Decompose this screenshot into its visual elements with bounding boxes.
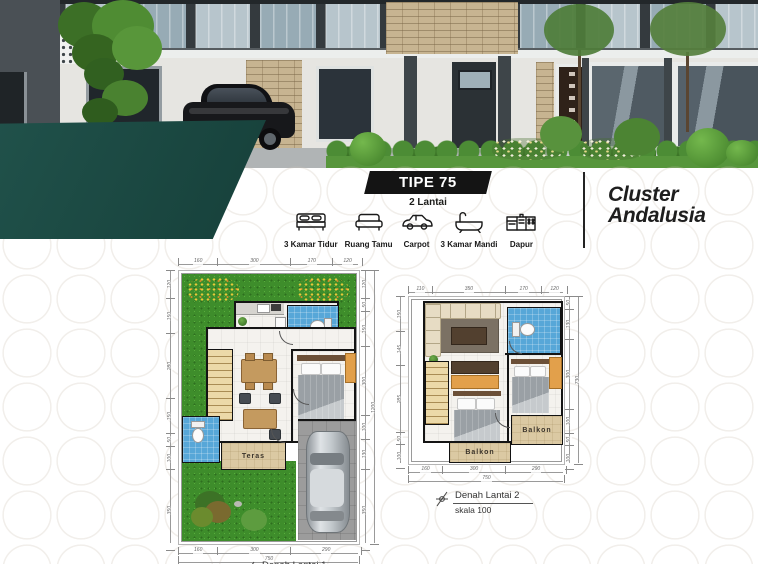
dim-label: 1200: [370, 270, 379, 545]
car-wheel-rim: [264, 133, 276, 145]
dim-label: 100: [361, 415, 370, 439]
console-cabinet: [451, 361, 499, 374]
tree-canopy: [82, 98, 118, 126]
dimension-col-left: 120 150 280 150 50 100 350: [166, 270, 175, 543]
feature-bathrooms: 3 Kamar Mandi: [441, 211, 498, 249]
carport: [298, 419, 356, 540]
car-icon: [400, 211, 434, 238]
coffee-table: [243, 409, 277, 429]
garden-plant: [191, 507, 213, 527]
dim-label: 170: [505, 286, 541, 294]
kitchen-sink: [257, 304, 270, 313]
dim-label: 350: [361, 469, 370, 551]
nightstand: [345, 353, 356, 383]
dim-label: 130: [361, 439, 370, 469]
bed-blanket: [454, 410, 500, 441]
bed-headboard: [453, 391, 501, 396]
dimension-col-right: 50 130 300 100 50 100: [565, 296, 574, 463]
terrace-label: Teras: [242, 453, 265, 460]
dim-label: 120: [166, 270, 175, 298]
feature-label: Carpot: [404, 240, 430, 249]
dimension-row-bottom: 160 300 290: [178, 547, 358, 555]
shrub: [614, 118, 660, 156]
tv-cabinet: [451, 327, 487, 345]
stove: [271, 304, 281, 311]
stone-cladding: [386, 2, 518, 54]
toilet-tank: [512, 322, 520, 337]
teal-ribbon: [0, 120, 266, 239]
caption-title: Denah Lantai 1: [260, 560, 340, 564]
feature-label: Ruang Tamu: [345, 240, 393, 249]
dim-label: 290: [505, 466, 567, 474]
caption-scale: skala 100: [453, 504, 533, 515]
balcony-label: Balkon: [465, 449, 494, 456]
dimension-col-left: 150 145 285 50 100: [396, 296, 405, 463]
tree-canopy: [544, 4, 614, 56]
floorplan-2-caption: Denah Lantai 2 skala 100: [435, 490, 533, 515]
dim-label: 50: [396, 432, 405, 445]
dim-label: 145: [396, 331, 405, 365]
garden-bush: [241, 509, 267, 531]
toilet-tank: [191, 421, 205, 428]
dim-label: 300: [217, 547, 290, 555]
floorplan-2-sheet: Balkon Balkon: [408, 296, 565, 465]
floorplan-1: 160 300 170 120 120 150 280 150 50 100 3…: [163, 256, 378, 564]
toilet-bowl: [192, 428, 204, 443]
balcony-label: Balkon: [522, 427, 551, 434]
interior-wall: [505, 353, 561, 355]
small-window: [458, 70, 492, 90]
dim-label: 130: [565, 309, 574, 340]
dim-label: 150: [166, 298, 175, 333]
floorplan-1-sheet: Teras: [178, 270, 360, 545]
car-rear-window: [310, 511, 344, 521]
dim-label: 290: [290, 547, 362, 555]
feature-bedrooms: 3 Kamar Tidur: [284, 211, 338, 249]
bed-pillow: [530, 366, 546, 377]
kitchen-icon: [504, 211, 538, 238]
dim-label: 50: [565, 296, 574, 309]
dim-label: 170: [290, 258, 332, 266]
dim-label: 100: [166, 446, 175, 470]
window: [316, 66, 374, 142]
dim-label: 100: [565, 409, 574, 433]
cluster-line2: Andalusia: [608, 205, 706, 226]
bed-pillow: [476, 398, 495, 410]
toilet-bowl: [520, 323, 535, 336]
brochure-page: TIPE 75 2 Lantai 3 Kamar Tidur: [0, 0, 758, 564]
dim-label: 300: [442, 466, 505, 474]
dim-label: 150: [361, 311, 370, 346]
dim-label: 160: [408, 466, 442, 474]
feature-label: 3 Kamar Tidur: [284, 240, 338, 249]
armchair: [269, 393, 281, 404]
dim-label: 120: [361, 270, 370, 298]
dim-label: 50: [565, 433, 574, 446]
balcony-right: Balkon: [511, 415, 563, 445]
bed-blanket: [512, 377, 549, 413]
dining-chair: [263, 382, 273, 390]
flower-patch: [187, 277, 239, 303]
dim-label: 110: [408, 286, 432, 294]
bed-headboard: [297, 355, 345, 361]
shrub: [540, 116, 582, 152]
dim-label: 120: [332, 258, 363, 266]
car-windshield: [310, 453, 344, 465]
dim-label: 300: [361, 346, 370, 415]
potted-plant: [238, 317, 247, 326]
dim-label: 150: [396, 296, 405, 331]
caption-title: Denah Lantai 2: [453, 490, 533, 504]
dim-label: 730: [574, 296, 583, 465]
sofa: [435, 303, 501, 319]
type-banner: TIPE 75: [364, 171, 492, 194]
car-roof: [310, 469, 344, 507]
dim-label: 160: [178, 547, 217, 555]
floorplan-2: 110 350 170 120 150 145 285 50 100 50 13…: [393, 278, 593, 528]
vertical-divider: [583, 172, 585, 248]
bed-icon: [294, 211, 328, 238]
staircase: [425, 361, 449, 425]
dim-label: 300: [565, 339, 574, 409]
balcony-center: Balkon: [449, 443, 511, 463]
wardrobe: [549, 357, 562, 389]
floors-label: 2 Lantai: [352, 197, 504, 208]
dimension-row-top: 110 350 170 120: [408, 286, 563, 294]
bed-pillow: [514, 366, 530, 377]
dim-label: 280: [166, 333, 175, 398]
dim-label: 50: [166, 433, 175, 445]
floorplan-1-caption: Denah Lantai 1: [242, 560, 340, 564]
sofa: [425, 303, 441, 357]
section-mark-icon: [435, 490, 449, 508]
tree-trunk: [686, 52, 689, 132]
feature-label: 3 Kamar Mandi: [441, 240, 498, 249]
garden-stone: [234, 501, 242, 507]
dimension-row-bottom: 160 300 290: [408, 466, 563, 474]
dimension-row-top: 160 300 170 120: [178, 258, 358, 266]
tree-trunk: [578, 50, 581, 134]
bathtub-icon: [453, 211, 485, 238]
topiary-ball: [726, 140, 758, 166]
dining-table: [241, 359, 277, 383]
bench: [451, 375, 499, 389]
dimension-row-bottom-total: 750: [408, 475, 563, 483]
topiary-ball: [686, 128, 730, 168]
dimension-col-right-total: 1200: [370, 270, 379, 543]
feature-livingroom: Ruang Tamu: [345, 211, 393, 249]
dim-label: 750: [408, 475, 565, 483]
dining-chair: [263, 353, 273, 361]
armchair: [239, 393, 251, 404]
tree-canopy: [650, 2, 726, 56]
dim-label: 150: [166, 398, 175, 433]
interior-wall: [507, 355, 509, 443]
dim-label: 300: [217, 258, 290, 266]
feature-label: Dapur: [510, 240, 533, 249]
flower-patch: [297, 277, 349, 303]
dim-label: 350: [166, 469, 175, 551]
cluster-line1: Cluster: [608, 184, 706, 205]
dimension-col-right-total: 730: [574, 296, 583, 463]
bed-pillow: [321, 363, 341, 375]
bed-pillow: [457, 398, 476, 410]
staircase: [207, 349, 233, 421]
section-mark-icon: [242, 560, 256, 564]
car-highlight: [189, 108, 289, 114]
bed-pillow: [301, 363, 321, 375]
sofa-icon: [353, 211, 385, 238]
feature-carport: Carpot: [400, 211, 434, 249]
type-label: TIPE 75: [399, 174, 457, 191]
feature-row: 3 Kamar Tidur Ruang Tamu Ca: [284, 211, 538, 249]
dim-label: 100: [396, 444, 405, 469]
dim-label: 50: [361, 298, 370, 310]
dining-chair: [245, 353, 255, 361]
dining-chair: [245, 382, 255, 390]
dimension-col-right: 120 50 150 300 100 130 350: [361, 270, 370, 543]
cluster-name: Cluster Andalusia: [608, 184, 706, 226]
dim-label: 160: [178, 258, 217, 266]
dim-label: 285: [396, 365, 405, 431]
topiary-ball: [350, 132, 386, 166]
lawn-side: [182, 328, 207, 416]
bed-headboard: [511, 359, 549, 364]
terrace: Teras: [221, 443, 286, 470]
bathroom-2: [182, 416, 220, 463]
dim-label: 120: [541, 286, 568, 294]
feature-kitchen: Dapur: [504, 211, 538, 249]
dim-label: 350: [432, 286, 505, 294]
